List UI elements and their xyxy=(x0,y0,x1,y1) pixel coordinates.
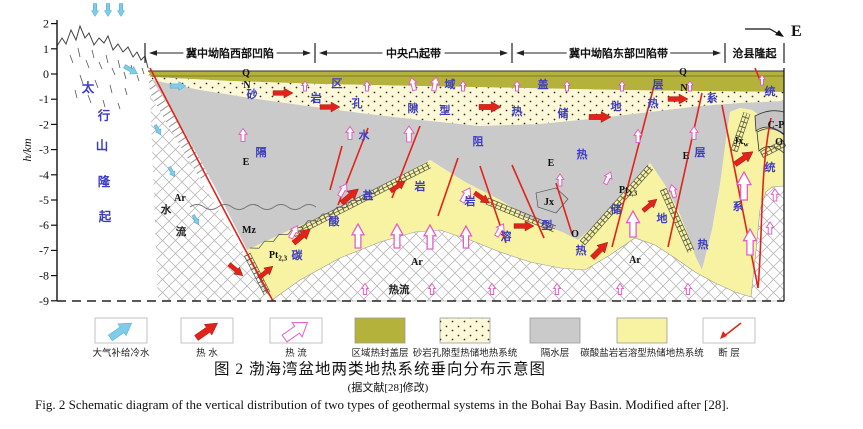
geo-label: 储 xyxy=(611,202,622,216)
geo-label: 热 xyxy=(576,243,587,257)
cross-section-figure: 210-1-2-3-4-5-6-7-8-9 h/km 冀中坳陷西部凹陷中央凸起带… xyxy=(0,0,863,429)
geo-label: 起 xyxy=(98,209,112,224)
geo-label: 水 xyxy=(359,128,371,142)
geo-label: 系 xyxy=(707,91,718,105)
geo-label: 隙 xyxy=(408,101,419,115)
geo-label: 水 xyxy=(160,203,172,216)
geo-label: 太 xyxy=(82,80,95,95)
geo-label: Ar xyxy=(629,255,641,266)
legend-cap-swatch xyxy=(355,318,405,343)
geo-label: E xyxy=(683,151,690,162)
geo-label: 盖 xyxy=(538,77,549,91)
axis-tick-label: -7 xyxy=(39,243,49,257)
legend-label: 碳酸盐岩岩溶型热储地热系统 xyxy=(580,347,704,359)
legend-label: 热 流 xyxy=(285,347,307,359)
geo-label: Q xyxy=(679,67,687,78)
geo-label: Ar xyxy=(411,257,423,268)
axis-tick-label: -3 xyxy=(39,143,49,157)
geo-label: 区 xyxy=(332,77,343,90)
geo-label: Jx xyxy=(544,197,554,208)
geo-label: 行 xyxy=(97,108,111,123)
legend-label: 砂岩孔隙型热储地热系统 xyxy=(413,347,518,359)
geo-label: 岩 xyxy=(464,194,476,208)
zone-label: 沧县隆起 xyxy=(733,46,778,60)
axis-tick-label: 2 xyxy=(43,17,49,31)
geo-label: Mz xyxy=(242,225,256,236)
geo-label: 岩 xyxy=(414,179,426,193)
geo-label: 储 xyxy=(558,106,569,120)
direction-label: E xyxy=(791,23,802,40)
axis-tick-label: -5 xyxy=(39,193,49,207)
zone-label: 中央凸起带 xyxy=(386,46,441,60)
axis-tick-label: -1 xyxy=(39,92,49,106)
geo-label: 阻 xyxy=(473,134,484,148)
geo-label: 隔 xyxy=(256,145,267,159)
geo-label: 型 xyxy=(542,218,553,232)
geo-label: 热 xyxy=(698,237,709,251)
geo-label: 孔 xyxy=(352,97,363,110)
geo-label: O xyxy=(775,137,783,148)
geo-label: 盐 xyxy=(363,188,374,202)
legend-aquitard-swatch xyxy=(530,318,580,343)
geo-label: Q xyxy=(242,68,250,79)
geo-label: 系 xyxy=(733,199,744,213)
geo-label: 统 xyxy=(765,160,776,174)
axis-label: h/km xyxy=(20,138,34,162)
legend-sandstone-dots xyxy=(440,318,490,343)
geo-label: 岩 xyxy=(310,91,322,105)
geo-label: 隆 xyxy=(98,174,111,189)
geo-label: 山 xyxy=(96,138,109,153)
axis-tick-label: -9 xyxy=(39,294,49,308)
geo-label: 酸 xyxy=(329,214,341,228)
caption-english: Fig. 2 Schematic diagram of the vertical… xyxy=(35,397,729,412)
zone-label: 冀中坳陷西部凹陷 xyxy=(186,46,274,60)
axis-tick-label: -4 xyxy=(39,168,49,182)
geo-label: 热 xyxy=(648,96,659,110)
legend-carbonate-swatch xyxy=(617,318,667,343)
figure-stage: 210-1-2-3-4-5-6-7-8-9 h/km 冀中坳陷西部凹陷中央凸起带… xyxy=(0,0,863,429)
caption-source: (据文献[28]修改) xyxy=(348,380,429,394)
axis-tick-label: -6 xyxy=(39,218,49,232)
geo-label: 地 xyxy=(611,99,622,113)
geo-label: N xyxy=(243,80,251,91)
legend-fault-symbol xyxy=(703,318,755,343)
geo-label: C-P xyxy=(768,120,785,131)
geo-label: O xyxy=(571,229,579,240)
geo-label: 层 xyxy=(652,78,664,91)
geo-label: 碳 xyxy=(292,248,304,262)
geo-label: 热 xyxy=(577,147,588,161)
legend-label: 大气补给冷水 xyxy=(92,347,150,359)
geo-label: 流 xyxy=(176,225,187,238)
geo-label: 统 xyxy=(765,84,776,98)
geo-label: 地 xyxy=(657,211,668,225)
geo-label: 型 xyxy=(440,103,451,117)
caption-chinese: 图 2 渤海湾盆地两类地热系统垂向分布示意图 xyxy=(214,359,546,378)
axis-tick-label: 0 xyxy=(43,67,49,81)
geo-label: E xyxy=(548,158,555,169)
legend-label: 断 层 xyxy=(718,347,740,359)
axis-tick-label: 1 xyxy=(43,42,49,56)
geo-label: 溶 xyxy=(501,229,512,243)
zone-label: 冀中坳陷东部凹陷带 xyxy=(569,46,668,60)
legend-label: 热 水 xyxy=(196,347,218,359)
geo-label: E xyxy=(243,157,250,168)
axis-tick-label: -2 xyxy=(39,117,49,131)
geo-label: 域 xyxy=(445,77,456,91)
axis-tick-label: -8 xyxy=(39,269,49,283)
legend-label: 区域热封盖层 xyxy=(351,347,408,359)
geo-label: 热流 xyxy=(389,283,410,296)
geo-label: 热 xyxy=(512,104,523,118)
geo-label: N xyxy=(680,83,688,94)
geo-label: 层 xyxy=(694,146,706,159)
geo-label: Ar xyxy=(174,193,186,204)
legend-label: 隔水层 xyxy=(541,347,570,359)
